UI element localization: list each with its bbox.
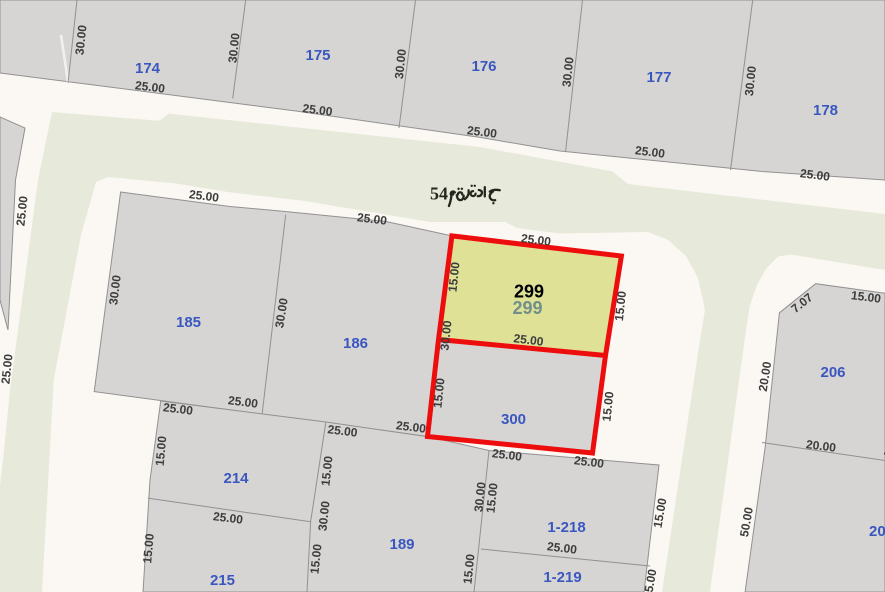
svg-text:175: 175 (305, 47, 330, 64)
svg-text:1-218: 1-218 (547, 519, 585, 536)
svg-text:185: 185 (176, 314, 201, 331)
svg-text:189: 189 (389, 536, 414, 553)
svg-text:1-219: 1-219 (543, 569, 581, 586)
svg-text:206: 206 (820, 364, 845, 381)
svg-text:215: 215 (210, 572, 235, 589)
svg-text:177: 177 (646, 69, 671, 86)
svg-text:15.00: 15.00 (140, 533, 157, 564)
svg-text:214: 214 (223, 470, 249, 487)
svg-text:207: 207 (869, 523, 885, 540)
svg-text:176: 176 (471, 58, 496, 75)
svg-text:299: 299 (512, 298, 542, 318)
svg-text:54: 54 (430, 184, 448, 204)
svg-text:178: 178 (813, 102, 838, 119)
svg-text:174: 174 (135, 60, 161, 77)
svg-text:15.00: 15.00 (153, 435, 170, 466)
svg-text:186: 186 (343, 335, 368, 352)
svg-text:300: 300 (501, 411, 526, 428)
